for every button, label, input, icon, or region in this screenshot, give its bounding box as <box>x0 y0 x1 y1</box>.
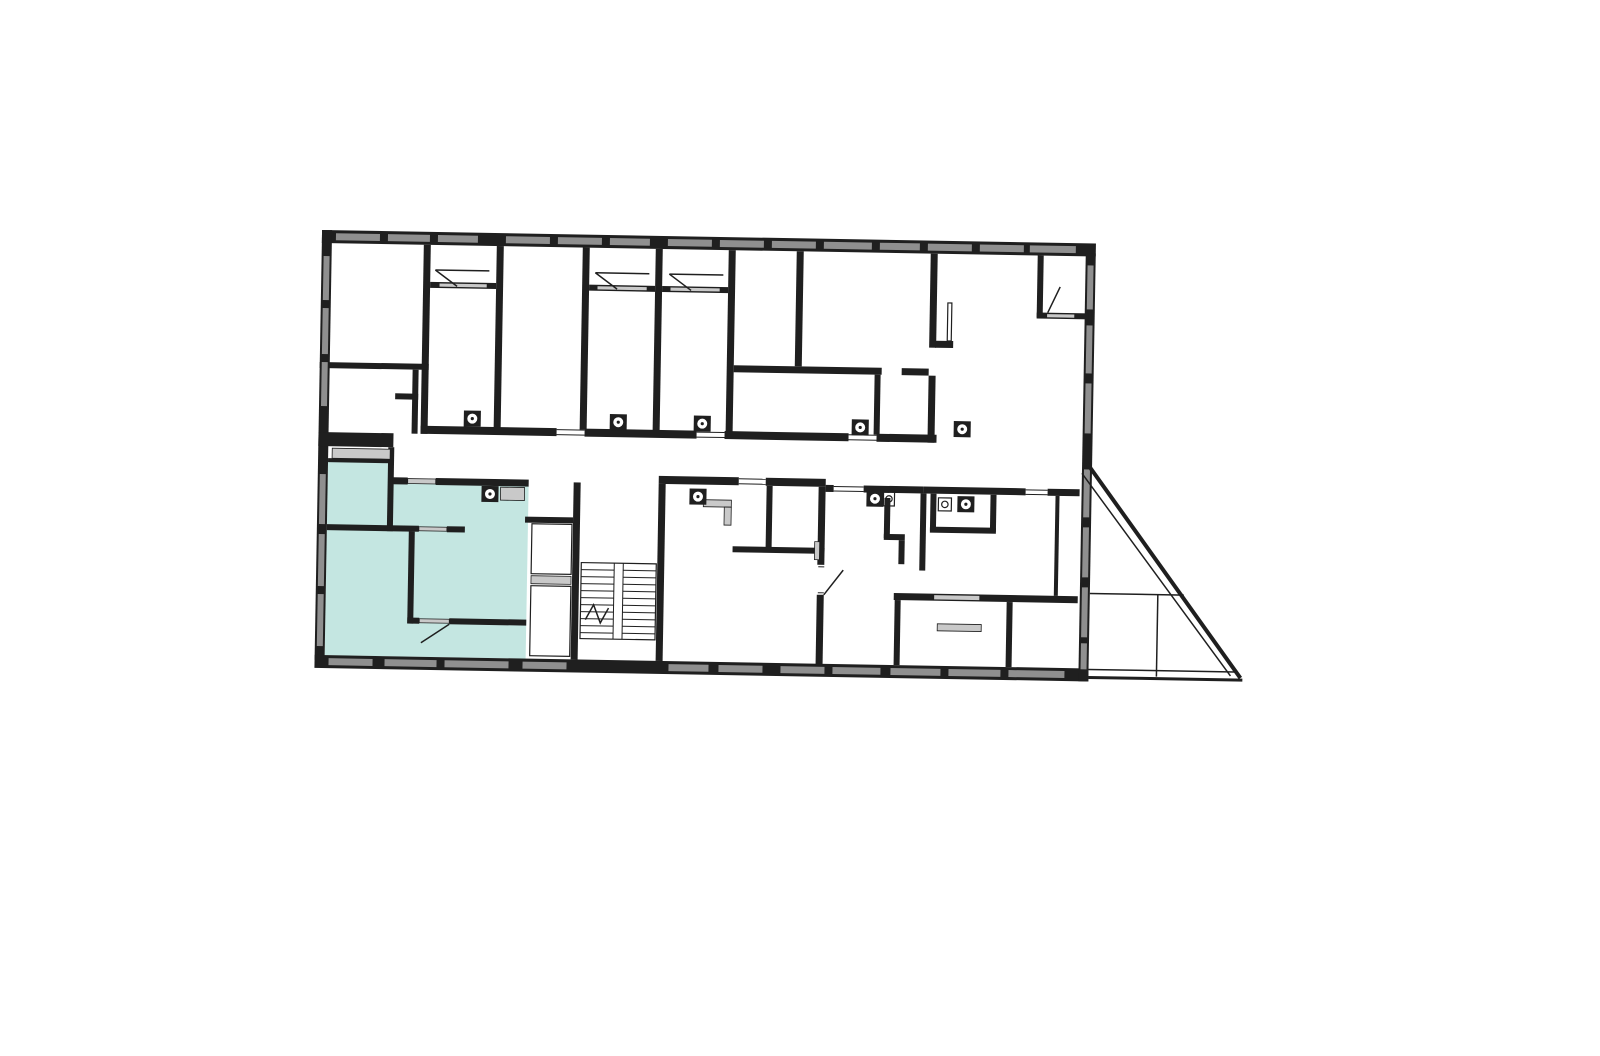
window-opening <box>880 243 920 251</box>
wall-segment <box>766 478 826 487</box>
wall-segment <box>585 429 697 439</box>
stair-break-mark <box>585 605 608 623</box>
window-opening <box>319 474 326 524</box>
wall-segment <box>826 485 834 492</box>
stair-tread <box>622 619 655 620</box>
stair-tread <box>623 577 656 578</box>
window-opening <box>506 236 550 244</box>
window-sill <box>724 507 731 525</box>
wall-segment <box>795 251 804 366</box>
fixtures-layer <box>462 411 976 513</box>
appliance-icon <box>957 496 974 512</box>
window-opening <box>668 239 712 247</box>
stair-tread <box>622 633 655 634</box>
wall-segment <box>990 495 997 532</box>
wall-segment <box>659 476 739 485</box>
shaft-room-outline <box>530 586 571 657</box>
window-sill <box>937 624 981 632</box>
door-swing <box>1048 287 1060 313</box>
window-opening <box>1030 245 1076 253</box>
window-sill <box>408 479 436 484</box>
stair-tread <box>581 570 614 571</box>
wall-segment <box>766 486 773 550</box>
window-sill <box>419 527 447 531</box>
stair-stringer-line <box>622 563 623 639</box>
window-opening <box>1081 643 1087 669</box>
terrace-divider-v <box>1156 595 1157 677</box>
wall-segment <box>407 618 419 624</box>
stair-tread <box>581 598 614 599</box>
stair-tread <box>580 633 613 634</box>
wall-segment <box>656 484 666 661</box>
floor-plan-svg <box>0 0 1600 1056</box>
window-opening <box>948 669 1000 677</box>
wall-segment <box>1048 489 1080 497</box>
door-jamb-line <box>834 486 864 487</box>
appliance-icon <box>464 411 481 427</box>
wall-segment <box>924 487 1026 496</box>
wall-segment <box>898 540 904 564</box>
appliance-icon <box>689 488 706 504</box>
window-sill <box>597 286 647 291</box>
window-sill <box>500 487 524 500</box>
wall-segment <box>927 376 935 443</box>
terrace-diagonal-inner <box>1078 473 1233 676</box>
window-opening <box>336 233 380 241</box>
window-opening <box>890 668 940 676</box>
stair-tread <box>623 570 656 571</box>
wall-segment <box>919 493 926 570</box>
window-sill <box>1047 314 1075 318</box>
wall-segment <box>580 248 590 430</box>
window-opening <box>388 234 430 242</box>
door-swing <box>824 570 843 595</box>
stair-tread <box>623 598 656 599</box>
wall-segment <box>494 246 504 428</box>
window-opening <box>668 664 708 672</box>
wall-segment <box>1006 602 1013 667</box>
wall-segment <box>320 362 429 370</box>
wall-segment <box>884 534 905 540</box>
window-opening <box>322 308 329 354</box>
wall-segment <box>571 482 581 659</box>
staircase <box>530 524 657 658</box>
wall-segment <box>421 426 557 436</box>
stair-treads <box>580 570 656 634</box>
terrace-bottom-wall <box>1088 677 1242 680</box>
window-opening <box>772 241 816 249</box>
window-sill <box>934 595 980 601</box>
balcony-door-leaf <box>669 274 723 275</box>
stair-well-outline <box>580 563 656 640</box>
door-jamb-line <box>834 491 864 492</box>
window-opening <box>718 665 762 673</box>
appliance-icon <box>866 491 883 507</box>
wall-segment <box>1037 255 1044 317</box>
wall-segment <box>1054 496 1060 596</box>
window-opening <box>321 362 328 406</box>
window-sill <box>419 619 449 624</box>
stair-stringer-line <box>613 563 614 639</box>
stair-tread <box>623 584 656 585</box>
wall-segment <box>733 546 825 554</box>
window-opening <box>558 237 602 245</box>
window-sill <box>439 283 487 288</box>
floor-plan <box>314 230 1250 684</box>
open-doorway <box>947 303 952 341</box>
appliance-icon <box>852 419 869 435</box>
balcony-door-leaf <box>595 273 649 274</box>
window-opening <box>1085 383 1092 433</box>
window-opening <box>824 242 872 250</box>
window-opening <box>384 659 436 667</box>
fixture-bowl <box>942 501 949 508</box>
window-sill <box>814 542 819 560</box>
wall-segment <box>894 593 1078 603</box>
window-opening <box>444 660 508 668</box>
wall-segment <box>447 526 465 532</box>
wall-segment <box>930 527 996 534</box>
appliance-icon <box>481 486 498 502</box>
stair-tread <box>623 591 656 592</box>
stair-tread <box>581 584 614 585</box>
window-opening <box>928 244 972 252</box>
stair-tread <box>580 626 613 627</box>
wall-segment <box>393 477 408 484</box>
wall-segment <box>902 368 929 375</box>
window-opening <box>318 534 325 586</box>
window-opening <box>1086 325 1093 373</box>
wall-segment <box>894 600 901 665</box>
terrace-bottom-edge <box>1089 669 1235 672</box>
window-sill <box>670 287 720 292</box>
window-opening <box>323 256 330 300</box>
wall-segment <box>421 245 431 434</box>
balcony-door-leaf <box>435 270 489 271</box>
terrace-diagonal-wall <box>1083 463 1244 678</box>
window-opening <box>980 244 1024 252</box>
window-opening <box>610 238 650 246</box>
stair-tread <box>622 626 655 627</box>
window-opening <box>522 662 566 670</box>
window-opening <box>1082 527 1089 577</box>
window-sill <box>703 500 731 507</box>
wall-segment <box>525 517 573 524</box>
wall-segment <box>815 595 823 669</box>
wall-segment <box>929 254 938 348</box>
window-opening <box>317 594 324 646</box>
window-sill <box>531 576 571 585</box>
window-opening <box>1008 670 1064 678</box>
wall-segment <box>734 365 882 375</box>
window-sill <box>332 448 390 459</box>
terrace-triangle <box>1078 463 1246 680</box>
stair-tread <box>581 577 614 578</box>
wall-segment <box>412 370 419 434</box>
wall-segment <box>724 431 848 441</box>
wall-segment <box>726 250 736 432</box>
appliance-icon <box>954 421 971 437</box>
window-opening <box>1087 265 1094 309</box>
window-opening <box>832 667 880 675</box>
stair-tread <box>622 612 655 613</box>
elevator-room-outline <box>531 524 572 575</box>
wall-segment <box>653 249 663 431</box>
page-background <box>0 0 1600 1056</box>
stair-tread <box>581 605 614 606</box>
wall-segment <box>935 341 953 348</box>
wall-segment <box>884 498 891 538</box>
fixture-outline <box>938 498 951 511</box>
window-opening <box>1081 587 1088 637</box>
stair-tread <box>581 591 614 592</box>
window-opening <box>780 666 824 674</box>
wall-segment <box>874 375 881 435</box>
window-opening <box>328 658 372 666</box>
wall-segment <box>930 494 937 531</box>
appliance-icon <box>610 414 627 430</box>
appliance-icon <box>694 416 711 432</box>
stair-tread <box>623 605 656 606</box>
window-opening <box>438 235 478 243</box>
sanitary-fixture-icon <box>938 498 951 511</box>
window-opening <box>720 240 764 248</box>
wall-segment <box>318 432 393 447</box>
